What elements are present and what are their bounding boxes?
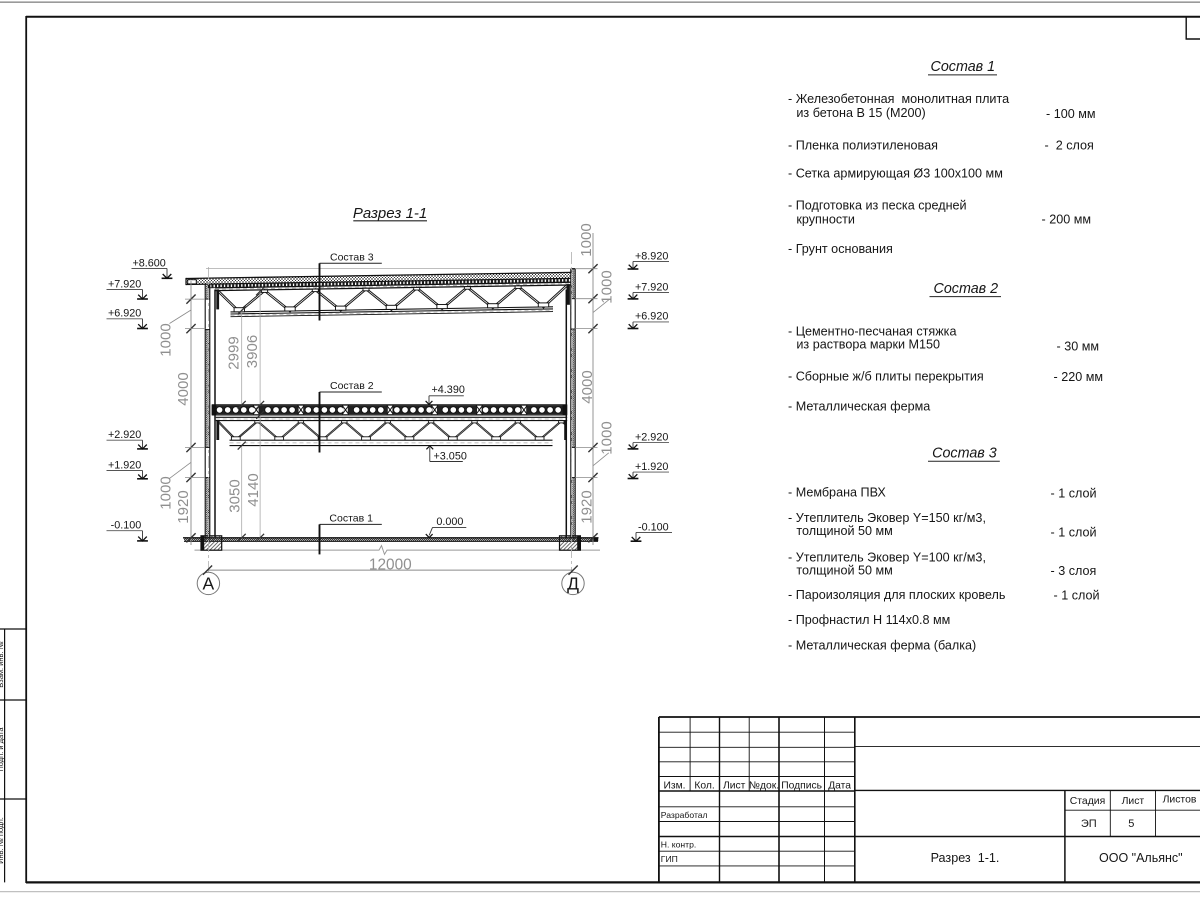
- svg-text:Разрез 1-1.: Разрез 1-1.: [931, 851, 1000, 865]
- svg-text:3906: 3906: [244, 335, 261, 368]
- svg-text:- Пароизоляция для плоских кро: - Пароизоляция для плоских кровель: [788, 588, 1006, 602]
- svg-text:+7.920: +7.920: [108, 278, 141, 290]
- svg-text:+8.600: +8.600: [132, 257, 165, 269]
- svg-text:- Сетка армирующая Ø3 100х100: - Сетка армирующая Ø3 100х100 мм: [788, 166, 1003, 180]
- svg-text:- 1 слой: - 1 слой: [1054, 589, 1100, 603]
- svg-text:1000: 1000: [157, 476, 174, 509]
- svg-text:1000: 1000: [157, 323, 174, 356]
- svg-text:+6.920: +6.920: [635, 311, 668, 323]
- svg-text:- Профнастил Н 114х0.8 мм: - Профнастил Н 114х0.8 мм: [788, 613, 950, 627]
- svg-text:3050: 3050: [227, 479, 244, 512]
- svg-text:+1.920: +1.920: [635, 461, 668, 473]
- svg-text:Подпись: Подпись: [781, 781, 822, 792]
- svg-text:- Цементно-песчаная стяжка: - Цементно-песчаная стяжка: [788, 325, 956, 339]
- svg-text:- 1 слой: - 1 слой: [1051, 487, 1097, 501]
- svg-text:Взам. инв. №: Взам. инв. №: [0, 641, 5, 687]
- svg-text:Лист: Лист: [723, 781, 746, 792]
- svg-text:Кол.: Кол.: [694, 781, 714, 792]
- svg-text:ООО "Альянс": ООО "Альянс": [1099, 851, 1183, 865]
- svg-text:Д: Д: [567, 574, 579, 594]
- svg-text:Состав 3: Состав 3: [932, 446, 997, 462]
- svg-text:Н. контр.: Н. контр.: [661, 840, 696, 850]
- svg-text:Состав 1: Состав 1: [329, 513, 373, 525]
- svg-text:№док.: №док.: [749, 781, 779, 792]
- svg-text:- Грунт основания: - Грунт основания: [788, 242, 893, 256]
- svg-text:- 3 слоя: - 3 слоя: [1051, 564, 1097, 578]
- svg-text:- Металлическая ферма: - Металлическая ферма: [788, 400, 930, 414]
- svg-text:Разрез 1-1: Разрез 1-1: [353, 205, 427, 222]
- svg-text:4000: 4000: [579, 370, 596, 403]
- svg-text:- 30 мм: - 30 мм: [1057, 339, 1100, 353]
- svg-text:- Сборные ж/б плиты перекрытия: - Сборные ж/б плиты перекрытия: [788, 370, 984, 384]
- svg-text:- 220 мм: - 220 мм: [1054, 370, 1104, 384]
- svg-text:- Мембрана ПВХ: - Мембрана ПВХ: [788, 486, 886, 500]
- svg-text:1920: 1920: [175, 490, 192, 523]
- svg-text:А: А: [203, 574, 215, 594]
- svg-text:Лист: Лист: [1122, 796, 1145, 807]
- svg-text:- Утеплитель Эковер Y=150 кг/м: - Утеплитель Эковер Y=150 кг/м3,: [788, 511, 986, 525]
- svg-text:- 200 мм: - 200 мм: [1042, 212, 1092, 226]
- svg-text:5: 5: [1128, 818, 1134, 830]
- svg-text:- Пленка полиэтиленовая: - Пленка полиэтиленовая: [788, 138, 938, 152]
- svg-text:Подп. и дата: Подп. и дата: [0, 727, 5, 772]
- svg-text:+2.920: +2.920: [635, 431, 668, 443]
- svg-text:Дата: Дата: [828, 781, 851, 792]
- svg-text:Состав 1: Состав 1: [931, 59, 996, 75]
- svg-text:0.000: 0.000: [436, 516, 463, 528]
- svg-text:толщиной 50 мм: толщиной 50 мм: [796, 563, 892, 577]
- svg-text:из бетона В 15 (М200): из бетона В 15 (М200): [796, 106, 925, 120]
- svg-text:4000: 4000: [175, 372, 192, 405]
- svg-text:-0.100: -0.100: [638, 521, 669, 533]
- svg-text:Инв. № подл.: Инв. № подл.: [0, 817, 5, 864]
- svg-text:+1.920: +1.920: [108, 459, 141, 471]
- svg-text:Состав 3: Состав 3: [330, 251, 374, 263]
- svg-text:Состав 2: Состав 2: [330, 380, 374, 392]
- svg-text:Стадия: Стадия: [1070, 796, 1105, 807]
- svg-text:крупности: крупности: [796, 212, 855, 226]
- svg-text:- 2 слоя: - 2 слоя: [1045, 138, 1094, 152]
- svg-text:+3.050: +3.050: [434, 450, 467, 462]
- svg-text:-0.100: -0.100: [111, 520, 142, 532]
- svg-text:2999: 2999: [226, 336, 243, 369]
- svg-text:ЭП: ЭП: [1081, 818, 1097, 830]
- svg-text:Листов: Листов: [1163, 794, 1197, 805]
- svg-text:толщиной 50 мм: толщиной 50 мм: [796, 524, 892, 538]
- svg-text:- Металлическая ферма (балка): - Металлическая ферма (балка): [788, 638, 976, 652]
- svg-text:ГИП: ГИП: [661, 854, 678, 864]
- svg-text:+8.920: +8.920: [635, 250, 668, 262]
- svg-text:1000: 1000: [599, 270, 616, 303]
- svg-text:- 100 мм: - 100 мм: [1046, 107, 1096, 121]
- svg-text:+6.920: +6.920: [108, 308, 141, 320]
- svg-text:- 1 слой: - 1 слой: [1051, 526, 1097, 540]
- svg-text:1000: 1000: [599, 421, 616, 454]
- svg-text:из раствора марки М150: из раствора марки М150: [796, 338, 940, 352]
- svg-text:- Железобетонная монолитная п: - Железобетонная монолитная плита: [788, 92, 1009, 106]
- svg-text:4140: 4140: [245, 473, 262, 506]
- svg-text:+2.920: +2.920: [108, 429, 141, 441]
- svg-text:- Подготовка из песка средней: - Подготовка из песка средней: [788, 198, 967, 212]
- svg-text:Разработал: Разработал: [661, 810, 708, 820]
- svg-text:+7.920: +7.920: [635, 281, 668, 293]
- svg-text:Изм.: Изм.: [663, 781, 685, 792]
- svg-text:- Утеплитель Эковер Y=100 кг/м: - Утеплитель Эковер Y=100 кг/м3,: [788, 550, 986, 564]
- svg-text:+4.390: +4.390: [432, 384, 465, 396]
- svg-text:1000: 1000: [578, 223, 595, 256]
- svg-text:1920: 1920: [578, 490, 595, 523]
- svg-text:12000: 12000: [369, 556, 412, 573]
- svg-text:Состав 2: Состав 2: [934, 281, 999, 297]
